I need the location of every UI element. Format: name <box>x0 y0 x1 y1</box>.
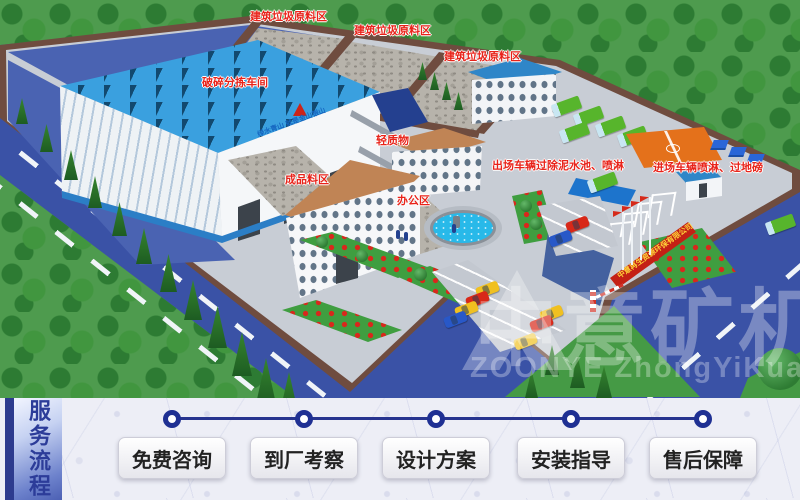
person <box>396 230 400 239</box>
tree <box>520 200 532 212</box>
step-button-free-consult[interactable]: 免费咨询 <box>118 437 226 479</box>
flagpole <box>649 197 651 255</box>
factory-aerial-view: 绿水青山 就是金山银山 <box>0 0 800 398</box>
service-process-banner: 服务流程 <box>5 398 62 500</box>
truck <box>765 213 797 235</box>
step-button-install-guide[interactable]: 安装指导 <box>517 437 625 479</box>
timeline-dot <box>562 410 580 428</box>
label-exit-vehicle-wash: 出场车辆过除泥水池、喷淋 <box>492 157 624 173</box>
step-button-design-plan[interactable]: 设计方案 <box>382 437 490 479</box>
tree <box>758 348 800 390</box>
label-raw-material-2: 建筑垃圾原料区 <box>354 22 431 38</box>
flagpole <box>640 202 642 260</box>
car <box>443 310 468 329</box>
timeline-dot <box>427 410 445 428</box>
step-button-factory-visit[interactable]: 到厂考察 <box>250 437 358 479</box>
fountain-pool <box>430 210 496 246</box>
label-crushing-workshop: 破碎分拣车间 <box>202 74 268 90</box>
court-center-circle <box>666 144 680 153</box>
label-light-material: 轻质物 <box>376 132 409 148</box>
timeline-dot <box>295 410 313 428</box>
tree <box>414 268 427 281</box>
label-raw-material-3: 建筑垃圾原料区 <box>444 48 521 64</box>
label-entry-vehicle-wash: 进场车辆喷淋、过地磅 <box>653 159 763 175</box>
label-office-area: 办公区 <box>397 192 430 208</box>
person <box>404 232 408 241</box>
spray-gantry <box>648 192 677 218</box>
service-process-bar: 服务流程 免费咨询 到厂考察 设计方案 安装指导 售后保障 <box>0 398 800 500</box>
timeline-dot <box>163 410 181 428</box>
tree <box>356 250 368 262</box>
step-button-aftersales[interactable]: 售后保障 <box>649 437 757 479</box>
person <box>452 224 456 233</box>
label-finished-product: 成品料区 <box>285 171 329 187</box>
gate-pillar <box>590 290 596 312</box>
flagpole <box>631 207 633 265</box>
timeline-dot <box>694 410 712 428</box>
banner-title: 服务流程 <box>22 399 54 499</box>
flagpole <box>622 212 624 270</box>
tree <box>530 218 542 230</box>
tree <box>316 236 328 248</box>
label-raw-material-1: 建筑垃圾原料区 <box>250 8 327 24</box>
